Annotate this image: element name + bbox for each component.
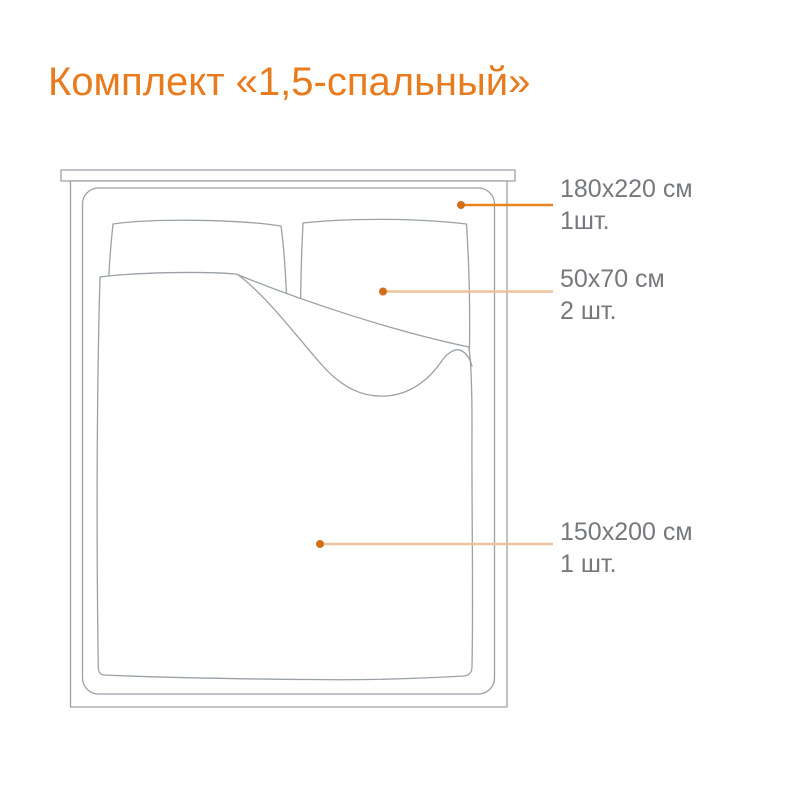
- callout-sheet: 180x220 см 1шт.: [560, 173, 693, 237]
- callout-duvet-qty: 1 шт.: [560, 548, 693, 580]
- infographic-page: Комплект «1,5-спальный» 180x220 см 1шт. …: [0, 0, 800, 800]
- callout-sheet-size: 180x220 см: [560, 173, 693, 205]
- leader-dot-duvet: [316, 540, 324, 548]
- callout-pillow: 50x70 см 2 шт.: [560, 263, 665, 327]
- callout-pillow-size: 50x70 см: [560, 263, 665, 295]
- leader-dot-sheet: [457, 201, 465, 209]
- bed-diagram: [0, 0, 800, 800]
- callout-pillow-qty: 2 шт.: [560, 295, 665, 327]
- leader-dot-pillow: [379, 288, 387, 296]
- headboard: [61, 170, 515, 181]
- callout-sheet-qty: 1шт.: [560, 205, 693, 237]
- callout-duvet-size: 150x200 см: [560, 516, 693, 548]
- callout-duvet: 150x200 см 1 шт.: [560, 516, 693, 580]
